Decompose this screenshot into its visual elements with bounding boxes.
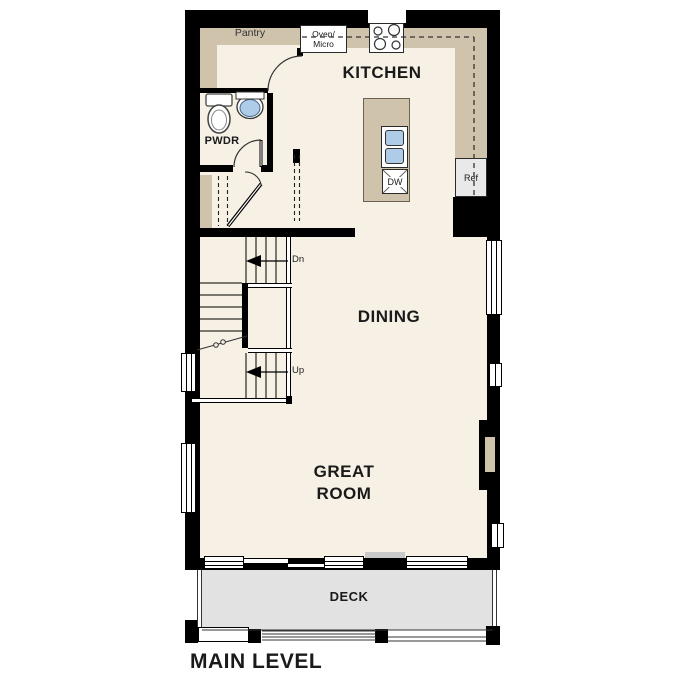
deck-stairs xyxy=(198,627,249,642)
wall-kitchen-se xyxy=(453,197,500,237)
window-mullion xyxy=(325,561,363,562)
deck-post-se xyxy=(486,626,500,645)
window-mullion xyxy=(186,354,187,391)
wall-stair-center xyxy=(242,283,248,348)
great-room-label: GREAT ROOM xyxy=(294,461,394,505)
dw-label: DW xyxy=(387,177,404,187)
pwdr-label: PWDR xyxy=(199,135,245,147)
window-mullion xyxy=(407,561,467,562)
page-title-text: MAIN LEVEL xyxy=(190,650,322,673)
window-left-1 xyxy=(181,353,196,392)
great-room-line2: ROOM xyxy=(294,483,394,505)
stair-down-label: Dn xyxy=(292,254,312,265)
stair-up-label: Up xyxy=(292,365,312,376)
window-mullion xyxy=(205,565,243,566)
pantry-counter-left xyxy=(200,45,217,88)
wall-hall-stub xyxy=(293,149,300,163)
window-mullion xyxy=(407,565,467,566)
pantry-label-text: Pantry xyxy=(235,27,265,39)
stair-down-text: Dn xyxy=(292,254,304,265)
floor-plan: Oven/ Micro Ref DW xyxy=(0,0,687,687)
window-mullion xyxy=(191,444,192,512)
page-title: MAIN LEVEL xyxy=(190,650,322,674)
kitchen-label: KITCHEN xyxy=(332,63,432,83)
stair-up-text: Up xyxy=(292,365,304,376)
dishwasher: DW xyxy=(382,169,408,194)
deck-label: DECK xyxy=(299,589,399,604)
deck-post-sw xyxy=(185,620,198,643)
kitchen-counter-right xyxy=(455,48,487,158)
dining-label-text: DINING xyxy=(358,307,421,326)
window-right-3 xyxy=(491,523,504,548)
island-sink-unit xyxy=(381,126,408,168)
window-mullion xyxy=(186,444,187,512)
kitchen-counter-top xyxy=(347,28,487,48)
oven-micro-label-line1: Oven/ xyxy=(312,29,335,39)
window-mullion xyxy=(497,524,498,547)
dining-label: DINING xyxy=(339,307,439,327)
wall-pwdr-south-left xyxy=(185,165,233,172)
window-right-2 xyxy=(489,363,502,387)
deck-label-text: DECK xyxy=(330,589,369,604)
wall-pantry-south xyxy=(200,88,268,93)
deck-post-1 xyxy=(248,629,261,643)
wall-pwdr-south-right xyxy=(261,165,273,172)
window-mullion xyxy=(205,561,243,562)
window-mullion xyxy=(191,354,192,391)
sink-basin-2 xyxy=(385,148,404,164)
wall-pwdr-east xyxy=(267,93,273,168)
entry-bench xyxy=(200,175,212,228)
window-mullion xyxy=(325,565,363,566)
great-room-line1: GREAT xyxy=(294,461,394,483)
oven-micro-label-line2: Micro xyxy=(313,39,334,49)
window-right-1 xyxy=(486,240,502,315)
window-left-2 xyxy=(181,443,196,513)
fireplace-inset xyxy=(485,437,495,472)
window-mullion xyxy=(495,364,496,386)
refrigerator: Ref xyxy=(455,158,487,197)
cooktop xyxy=(369,23,404,53)
ref-label: Ref xyxy=(464,173,478,183)
window-mullion xyxy=(496,241,497,314)
window-mullion xyxy=(491,241,492,314)
sink-basin-1 xyxy=(385,130,404,146)
pantry-label: Pantry xyxy=(218,27,282,39)
wall-stair-north xyxy=(185,228,355,237)
sliding-door-panel-2 xyxy=(287,563,328,568)
sliding-door-panel-1 xyxy=(243,558,289,564)
window-bottom-1 xyxy=(204,556,244,569)
window-bottom-3 xyxy=(406,556,468,569)
cooktop-wall-gap xyxy=(368,10,406,23)
deck-post-2 xyxy=(375,629,388,643)
window-bottom-2 xyxy=(324,556,364,569)
pwdr-label-text: PWDR xyxy=(205,135,240,147)
oven-micro-cabinet: Oven/ Micro xyxy=(300,25,347,53)
kitchen-label-text: KITCHEN xyxy=(342,63,421,82)
